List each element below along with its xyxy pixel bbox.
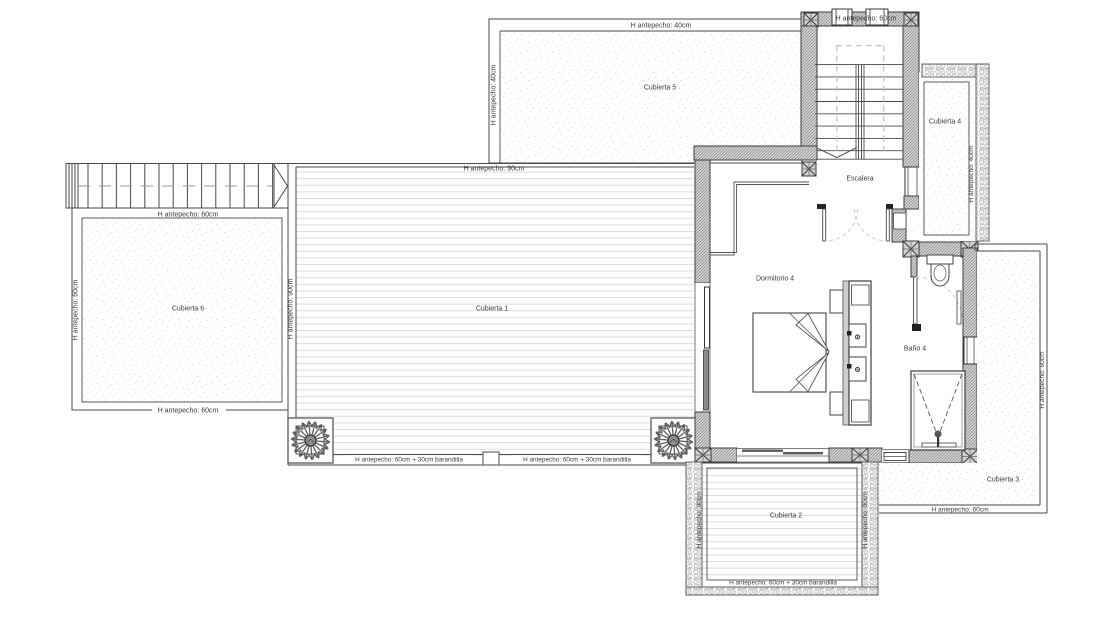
svg-text:H antepecho: 60cm + 30cm baran: H antepecho: 60cm + 30cm barandilla xyxy=(523,457,631,464)
svg-text:H antepecho: 40cm: H antepecho: 40cm xyxy=(968,145,975,203)
svg-text:Cubierta 5: Cubierta 5 xyxy=(644,85,676,92)
svg-text:H antepecho: 60cm + 30cm baran: H antepecho: 60cm + 30cm barandilla xyxy=(355,457,463,464)
svg-text:Cubierta 1: Cubierta 1 xyxy=(476,306,508,313)
svg-text:H antepecho: 60cm + 30cm baran: H antepecho: 60cm + 30cm barandilla xyxy=(729,580,837,587)
svg-text:H antepecho: 60cm: H antepecho: 60cm xyxy=(158,408,219,415)
svg-text:H antepecho: 60cm: H antepecho: 60cm xyxy=(836,16,897,23)
svg-text:Escalera: Escalera xyxy=(846,176,873,183)
svg-text:H antepecho: 40cm: H antepecho: 40cm xyxy=(491,64,498,125)
svg-text:H antepecho: 60cm: H antepecho: 60cm xyxy=(73,279,80,340)
svg-text:H antepecho: 60cm: H antepecho: 60cm xyxy=(158,212,219,219)
svg-text:Dormitorio 4: Dormitorio 4 xyxy=(756,276,794,283)
svg-text:H antepecho: 90cm: H antepecho: 90cm xyxy=(288,278,295,339)
svg-text:H antepecho: 60cm: H antepecho: 60cm xyxy=(1039,351,1046,409)
svg-text:H antepecho: 90cm: H antepecho: 90cm xyxy=(862,491,869,549)
svg-text:Cubierta 2: Cubierta 2 xyxy=(770,513,802,520)
svg-text:Cubierta 3: Cubierta 3 xyxy=(987,477,1019,484)
svg-text:Baño 4: Baño 4 xyxy=(904,346,926,353)
svg-text:H antepecho: 90cm: H antepecho: 90cm xyxy=(696,491,703,549)
svg-text:H antepecho: 60cm: H antepecho: 60cm xyxy=(931,507,989,514)
svg-text:Cubierta 4: Cubierta 4 xyxy=(929,119,961,126)
svg-text:H antepecho: 90cm: H antepecho: 90cm xyxy=(464,166,525,173)
svg-text:H antepecho: 40cm: H antepecho: 40cm xyxy=(631,23,692,30)
svg-text:Cubierta 6: Cubierta 6 xyxy=(172,306,204,313)
